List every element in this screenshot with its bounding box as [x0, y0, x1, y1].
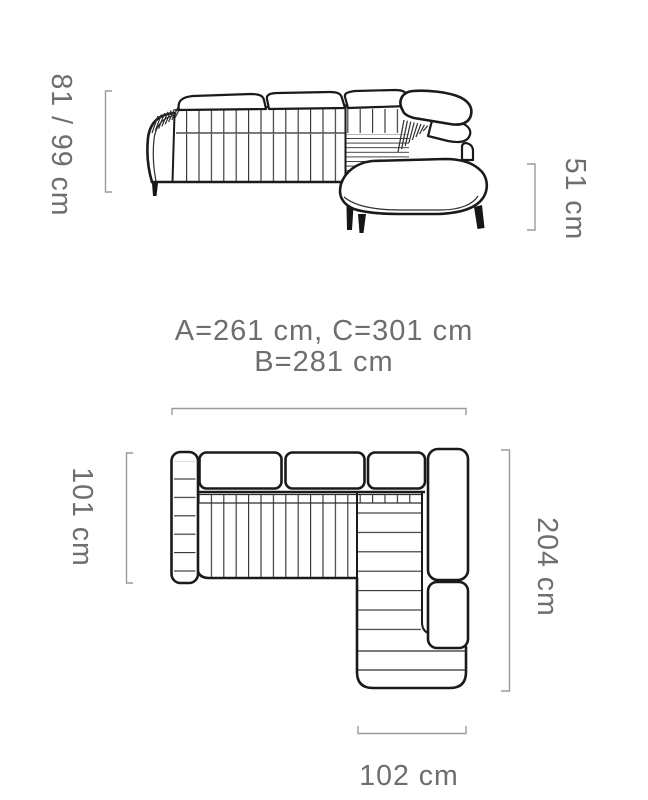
chaise-left-leg: [358, 214, 366, 233]
plan-depth-bracket: [127, 453, 134, 583]
plan-chaise-width-bracket: [358, 726, 466, 734]
plan-back-cushion-1: [200, 453, 282, 489]
plan-chaise-width-label: 102 cm: [309, 758, 509, 794]
plan-length-label: 204 cm: [529, 487, 565, 647]
headrest-2: [267, 92, 345, 109]
plan-depth-label: 101 cm: [64, 437, 100, 597]
front-height-label: 81 / 99 cm: [43, 45, 79, 245]
front-backrest-channels: [186, 109, 400, 133]
plan-chaise-back-cushion: [428, 582, 468, 648]
plan-width-bracket: [172, 409, 466, 416]
plan-corner-channels: [358, 503, 421, 640]
chaise-right-leg: [474, 205, 485, 229]
plan-left-armrest-stripes: [174, 461, 196, 577]
overall-dimensions-line2: B=281 cm: [0, 346, 648, 379]
plan-back-cushion-2: [286, 453, 365, 489]
front-right-arm-roll: [400, 91, 471, 125]
front-seat-height-label: 51 cm: [557, 139, 593, 259]
plan-back-cushion-3: [368, 453, 425, 489]
overall-dimensions-line1: A=261 cm, C=301 cm: [0, 315, 648, 348]
plan-seat-channels: [203, 503, 356, 577]
front-arm-support: [462, 143, 473, 160]
front-seat-height-bracket: [527, 164, 535, 230]
line-art-canvas: [0, 0, 648, 800]
front-left-arm-pleats: [152, 106, 181, 133]
plan-length-bracket: [501, 450, 510, 691]
front-seat-channels: [176, 134, 343, 181]
plan-right-armrest: [428, 449, 468, 580]
sofa-top-view-drawing: [172, 449, 469, 688]
front-left-leg: [152, 183, 158, 196]
plan-back-band-ticks: [199, 494, 421, 503]
headrest-1: [179, 94, 266, 110]
sofa-front-view-drawing: [147, 90, 486, 233]
sofa-dimensions-diagram: 81 / 99 cm 51 cm A=261 cm, C=301 cm B=28…: [0, 0, 648, 800]
front-height-bracket: [106, 91, 113, 192]
